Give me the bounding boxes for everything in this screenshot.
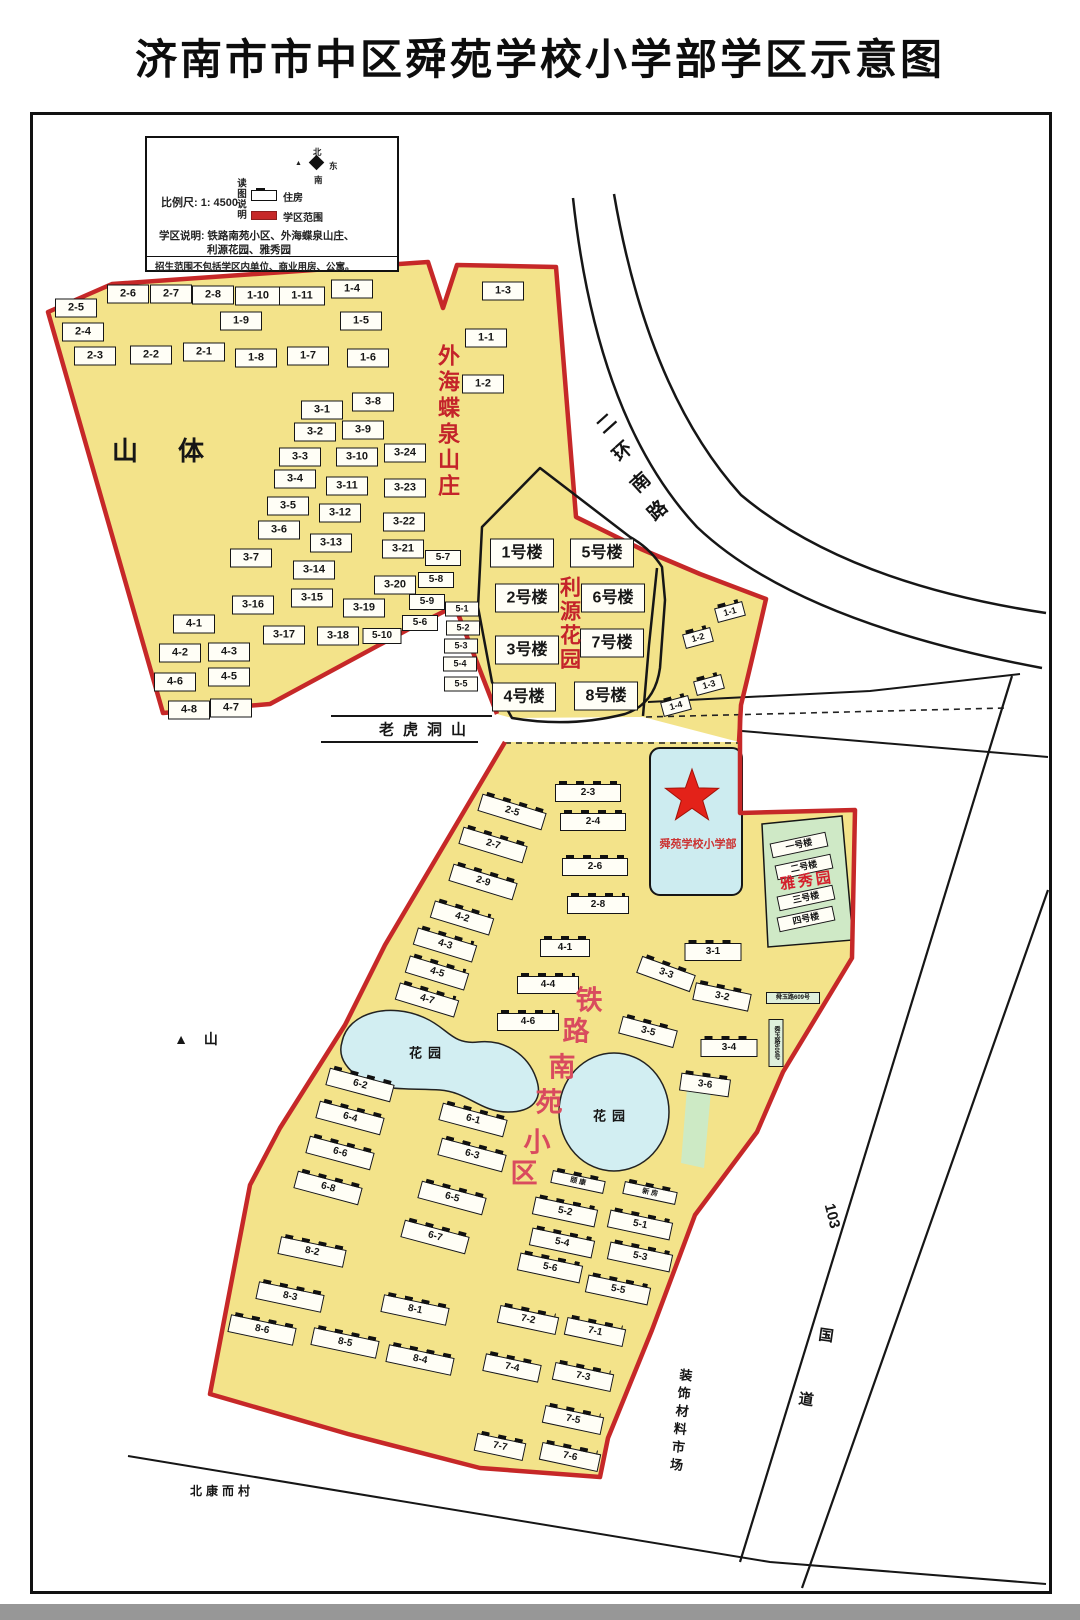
scan-edge-bar bbox=[0, 1604, 1080, 1620]
district-desc-line1: 学区说明: 铁路南苑小区、外海蝶泉山庄、 bbox=[159, 228, 354, 243]
pond-east bbox=[559, 1053, 669, 1171]
compass-diamond bbox=[309, 155, 325, 171]
district-desc-line2: 利源花园、雅秀园 bbox=[207, 242, 291, 257]
road-erhuan-outer bbox=[614, 194, 1046, 613]
school-area bbox=[650, 748, 742, 895]
compass-east-label: 东 bbox=[329, 160, 338, 172]
housing-symbol-icon bbox=[251, 190, 277, 201]
scale-label: 比例尺: 1: 4500 bbox=[161, 194, 238, 210]
district-lower-fill bbox=[210, 742, 855, 1477]
housing-label: 住房 bbox=[283, 189, 303, 204]
legend-reading-note: 读图说明 bbox=[235, 178, 247, 220]
legend-divider bbox=[147, 256, 397, 257]
district-range-symbol bbox=[251, 211, 277, 220]
compass-west-mark: ▲ bbox=[295, 160, 302, 167]
enrollment-note: 招生范围不包括学区内单位、商业用房、公寓。 bbox=[155, 259, 355, 273]
road-east-south-edge bbox=[742, 731, 1048, 757]
map-page: { "title": "济南市市中区舜苑学校小学部学区示意图", "legend… bbox=[0, 0, 1080, 1620]
yaxiuyuan-area bbox=[762, 816, 853, 947]
district-range-label: 学区范围 bbox=[283, 209, 323, 224]
district-upper-fill bbox=[48, 262, 766, 742]
compass-south-label: 南 bbox=[314, 174, 323, 186]
legend-box: 北 东 南 ▲ 比例尺: 1: 4500 读图说明 住房 学区范围 学区说明: … bbox=[145, 136, 399, 272]
road-103-west bbox=[740, 676, 1012, 1562]
compass-icon: 北 东 南 ▲ bbox=[287, 146, 347, 186]
